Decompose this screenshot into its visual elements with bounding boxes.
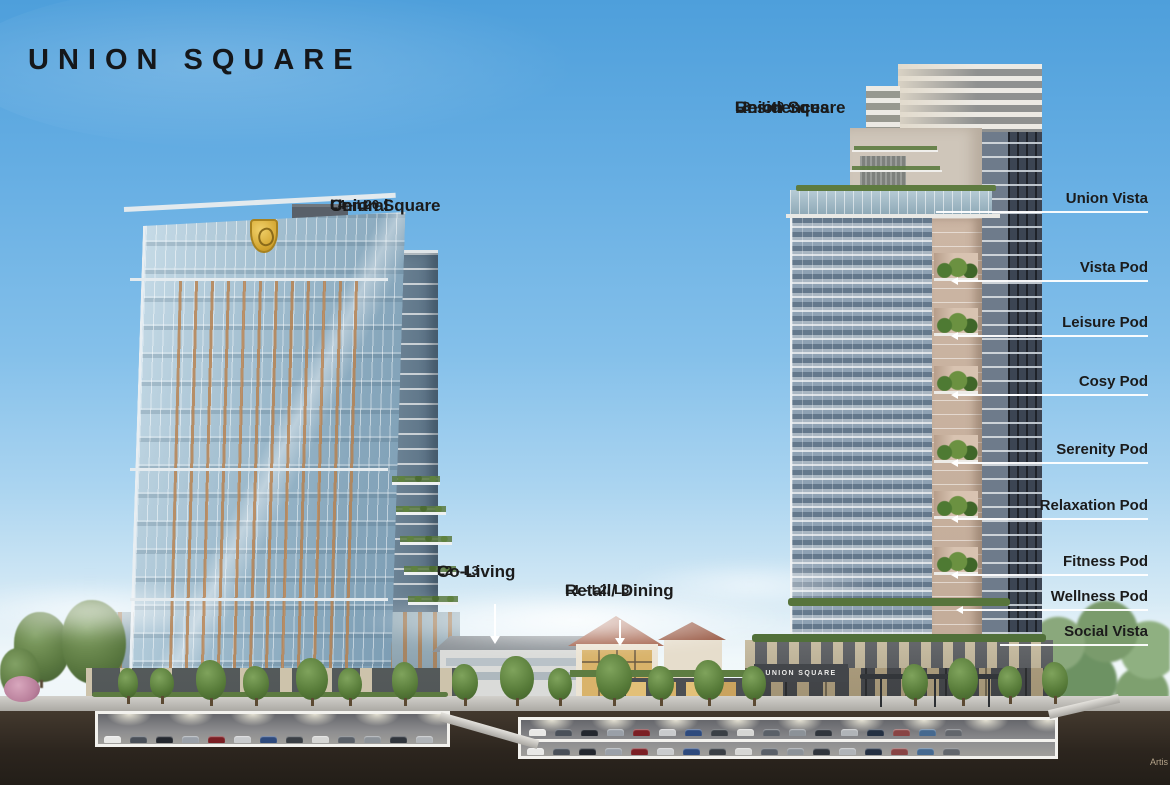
tree — [742, 666, 766, 700]
parked-car — [390, 736, 407, 743]
artist-impression-note: Artis — [1150, 757, 1168, 767]
tree — [296, 658, 328, 700]
callout-label: Leisure Pod — [1062, 314, 1148, 331]
tree — [1042, 662, 1068, 698]
tree — [392, 662, 418, 700]
parked-car — [631, 748, 648, 755]
parked-car — [867, 729, 884, 736]
parked-car — [338, 736, 355, 743]
setback-terrace — [852, 150, 938, 152]
parked-car — [787, 748, 804, 755]
parked-car — [553, 748, 570, 755]
leader-line — [958, 394, 1148, 396]
leader-line — [963, 609, 1148, 611]
tree — [150, 668, 174, 698]
tree — [648, 666, 674, 700]
parked-car — [555, 729, 572, 736]
label-levels: L2 - L3 — [437, 564, 479, 579]
tree — [452, 664, 478, 700]
callout-label: Cosy Pod — [1079, 373, 1148, 390]
tree — [948, 658, 978, 700]
basement-carpark-right — [518, 717, 1058, 759]
parked-car — [633, 729, 650, 736]
parked-car — [260, 736, 277, 743]
callout-union-vista: Union Vista — [1066, 190, 1148, 212]
canopy-post — [988, 679, 990, 707]
terrace-ledge — [400, 542, 452, 545]
tree — [196, 660, 226, 700]
parked-car — [607, 729, 624, 736]
parked-car — [685, 729, 702, 736]
parked-car — [763, 729, 780, 736]
parked-car — [579, 748, 596, 755]
arrow-left-icon — [951, 459, 958, 467]
parked-car — [813, 748, 830, 755]
leader-line — [958, 574, 1148, 576]
parked-car — [917, 748, 934, 755]
union-square-logo: UNION SQUARE — [28, 44, 362, 77]
leader-line — [958, 518, 1148, 520]
car-row — [104, 736, 433, 743]
tree — [500, 656, 534, 700]
union-vista-roof-garden — [796, 185, 996, 191]
basement-carpark-left — [95, 711, 450, 747]
parked-car — [364, 736, 381, 743]
parked-car — [657, 748, 674, 755]
parked-car — [711, 729, 728, 736]
parked-car — [529, 729, 546, 736]
parked-car — [761, 748, 778, 755]
right-tower-crown-step — [866, 86, 900, 132]
car-row — [529, 729, 962, 736]
callout-fitness-pod: Fitness Pod — [1063, 553, 1148, 575]
retail-dining-arrow — [619, 620, 621, 638]
right-tower-crown — [898, 64, 1042, 132]
arrow-down-icon — [615, 638, 625, 646]
parked-car — [735, 748, 752, 755]
co-living-arrow — [494, 604, 496, 636]
leader-line — [936, 211, 1148, 213]
car-row — [527, 748, 960, 755]
terrace-ledge — [392, 482, 440, 485]
parked-car — [130, 736, 147, 743]
parked-car — [709, 748, 726, 755]
parked-car — [893, 729, 910, 736]
callout-label: Wellness Pod — [1051, 588, 1148, 605]
parked-car — [919, 729, 936, 736]
basement-floor-slab — [521, 739, 1055, 742]
label-levels: L3 - L40 — [735, 100, 784, 115]
tree — [902, 664, 928, 700]
leader-line — [1000, 644, 1148, 646]
parked-car — [943, 748, 960, 755]
parked-car — [312, 736, 329, 743]
arrow-left-icon — [951, 277, 958, 285]
arrow-left-icon — [951, 391, 958, 399]
parked-car — [659, 729, 676, 736]
parked-car — [891, 748, 908, 755]
terrace-ledge — [408, 602, 458, 605]
parked-car — [683, 748, 700, 755]
facade-band — [130, 468, 388, 471]
podium-roof-garden — [752, 634, 1046, 642]
parked-car — [527, 748, 544, 755]
parked-car — [839, 748, 856, 755]
canopy-post — [880, 679, 882, 707]
artist-impression-scene: UNION SQUARE — [0, 0, 1170, 785]
tree — [596, 654, 632, 700]
tree — [548, 668, 572, 700]
callout-relaxation-pod: Relaxation Pod — [1040, 497, 1148, 519]
setback-terrace — [850, 170, 942, 172]
parked-car — [841, 729, 858, 736]
left-tower-bronze-fins — [168, 278, 367, 702]
callout-cosy-pod: Cosy Pod — [1079, 373, 1148, 395]
label-levels: L1 - L2/ L3 — [565, 583, 629, 598]
parked-car — [416, 736, 433, 743]
tree — [338, 668, 362, 700]
callout-serenity-pod: Serenity Pod — [1056, 441, 1148, 463]
parked-car — [208, 736, 225, 743]
arrow-left-icon — [956, 606, 963, 614]
sky-garden-pod — [934, 366, 978, 394]
arrow-left-icon — [951, 571, 958, 579]
flowering-shrub — [4, 676, 40, 702]
facade-band — [130, 278, 388, 281]
callout-social-vista: Social Vista — [1064, 623, 1148, 645]
callout-label: Serenity Pod — [1056, 441, 1148, 458]
tree — [243, 666, 269, 700]
parked-car — [182, 736, 199, 743]
callout-label: Relaxation Pod — [1040, 497, 1148, 514]
callout-label: Fitness Pod — [1063, 553, 1148, 570]
parked-car — [865, 748, 882, 755]
leader-line — [958, 462, 1148, 464]
parked-car — [286, 736, 303, 743]
tree — [118, 668, 138, 698]
parked-car — [104, 736, 121, 743]
parked-car — [156, 736, 173, 743]
terrace-ledge — [396, 512, 446, 515]
leader-line — [958, 335, 1148, 337]
parked-car — [945, 729, 962, 736]
tree — [694, 660, 724, 700]
union-vista-slab — [786, 214, 1000, 218]
podium-roof-garden — [788, 598, 1010, 606]
callout-label: Union Vista — [1066, 190, 1148, 207]
parked-car — [605, 748, 622, 755]
arrow-down-icon — [490, 636, 500, 644]
parked-car — [789, 729, 806, 736]
callout-leisure-pod: Leisure Pod — [1062, 314, 1148, 336]
arrow-left-icon — [951, 332, 958, 340]
callout-label: Social Vista — [1064, 623, 1148, 640]
label-levels: L4 - L20 — [330, 198, 379, 213]
tree — [998, 666, 1022, 698]
parked-car — [815, 729, 832, 736]
callout-vista-pod: Vista Pod — [1080, 259, 1148, 281]
parked-car — [234, 736, 251, 743]
facade-band — [130, 598, 388, 601]
leader-line — [958, 280, 1148, 282]
parked-car — [581, 729, 598, 736]
callout-wellness-pod: Wellness Pod — [1051, 588, 1148, 610]
parked-car — [737, 729, 754, 736]
arrow-left-icon — [951, 515, 958, 523]
podium-signage: UNION SQUARE — [754, 664, 848, 682]
callout-label: Vista Pod — [1080, 259, 1148, 276]
canopy-post — [934, 679, 936, 707]
